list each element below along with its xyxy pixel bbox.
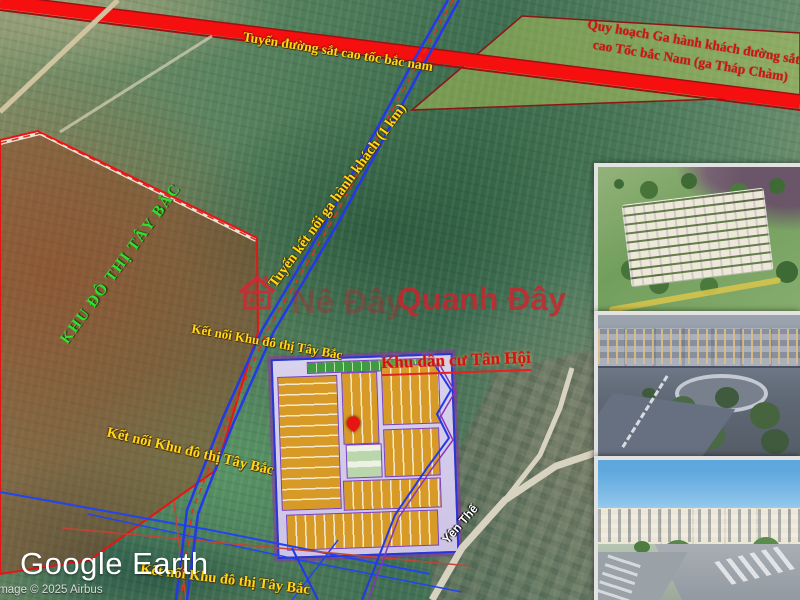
inset-aerial-masterplan-render	[594, 163, 800, 315]
imagery-copyright: Image © 2025 Airbus	[0, 584, 103, 596]
townhouse-rows	[622, 187, 774, 286]
dusk-render-image	[598, 315, 800, 456]
plot-block	[383, 427, 441, 477]
google-earth-map-screenshot: Tuyến đường sắt cao tốc bắc nam Quy hoạc…	[0, 0, 800, 600]
watermark-house-icon	[236, 272, 278, 314]
plot-block	[343, 477, 442, 510]
day-render-image	[598, 460, 800, 600]
amenity-block	[346, 443, 383, 478]
inset-day-street-render	[594, 456, 800, 600]
subdivision-tan-hoi	[271, 353, 460, 559]
trees	[614, 179, 624, 189]
bushes	[634, 541, 650, 553]
lit-windows	[598, 329, 800, 364]
plot-block	[277, 375, 342, 511]
plot-block	[341, 372, 379, 445]
watermark-prefix: Nê Đây	[292, 283, 404, 321]
aerial-render-image	[598, 167, 800, 311]
windows	[598, 509, 800, 542]
plot-block	[286, 509, 439, 550]
inset-dusk-street-render	[594, 311, 800, 460]
google-earth-logo: Google Earth	[20, 546, 209, 582]
watermark-brand: Quanh Đây	[397, 281, 566, 318]
